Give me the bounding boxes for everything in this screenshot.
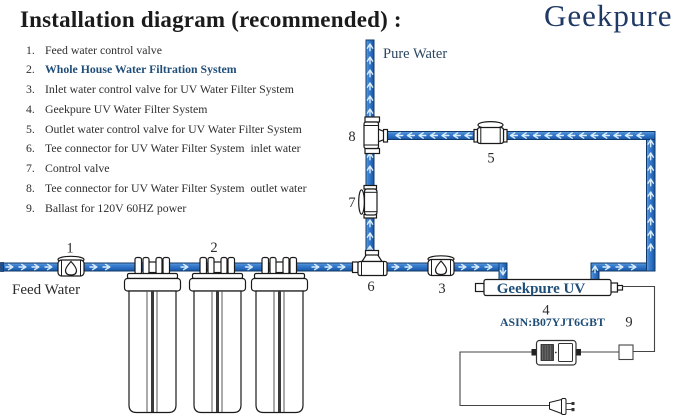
svg-text:Geekpure UV: Geekpure UV xyxy=(497,281,586,297)
svg-text:2: 2 xyxy=(210,240,217,256)
svg-text:5: 5 xyxy=(487,151,494,167)
svg-text:8: 8 xyxy=(348,129,355,145)
svg-text:1: 1 xyxy=(66,241,73,257)
svg-text:Feed Water: Feed Water xyxy=(12,282,80,298)
svg-text:ASIN:B07YJT6GBT: ASIN:B07YJT6GBT xyxy=(500,315,605,329)
svg-text:6: 6 xyxy=(367,279,374,295)
svg-text:7: 7 xyxy=(348,195,355,211)
svg-text:9: 9 xyxy=(625,315,632,331)
svg-text:Pure Water: Pure Water xyxy=(383,46,447,62)
svg-text:3: 3 xyxy=(438,281,445,297)
